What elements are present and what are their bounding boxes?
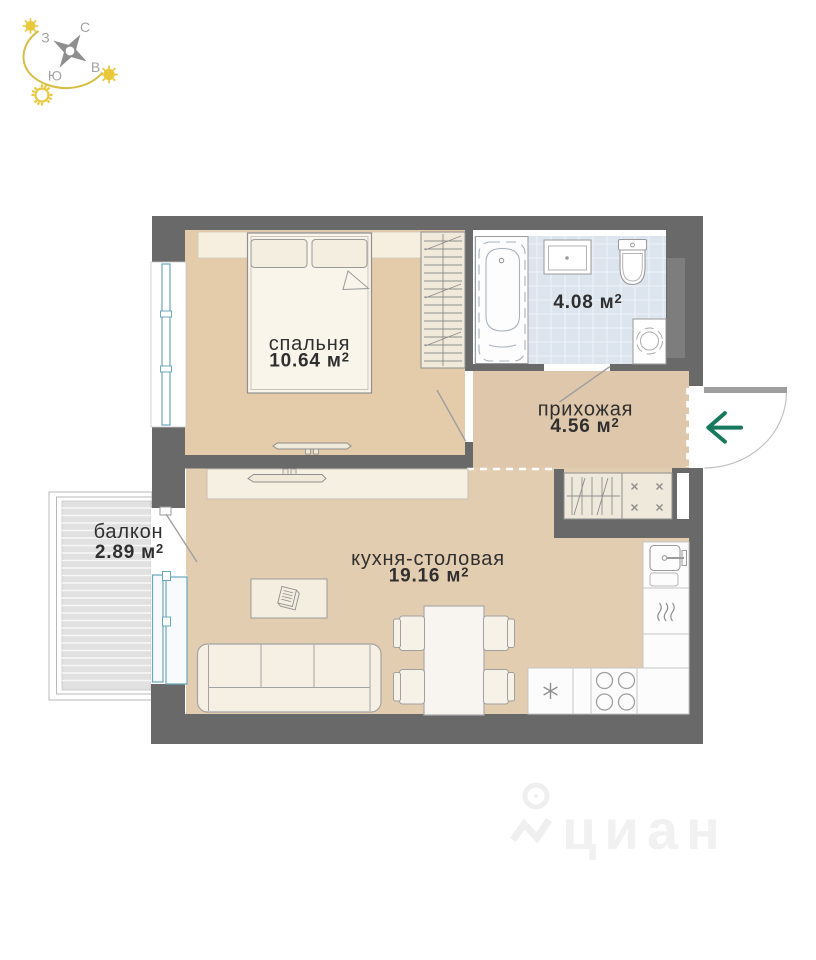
svg-text:В: В xyxy=(91,59,100,75)
svg-text:2.89 м2: 2.89 м2 xyxy=(95,541,164,563)
svg-text:С: С xyxy=(80,19,90,35)
svg-text:4.56 м2: 4.56 м2 xyxy=(550,415,619,437)
svg-text:4.08 м2: 4.08 м2 xyxy=(553,291,622,313)
svg-text:19.16 м2: 19.16 м2 xyxy=(389,565,470,587)
svg-text:циан: циан xyxy=(562,798,728,861)
svg-text:балкон: балкон xyxy=(94,521,164,543)
svg-text:10.64 м2: 10.64 м2 xyxy=(269,350,350,372)
svg-text:З: З xyxy=(41,30,49,46)
svg-text:Ю: Ю xyxy=(48,68,62,84)
